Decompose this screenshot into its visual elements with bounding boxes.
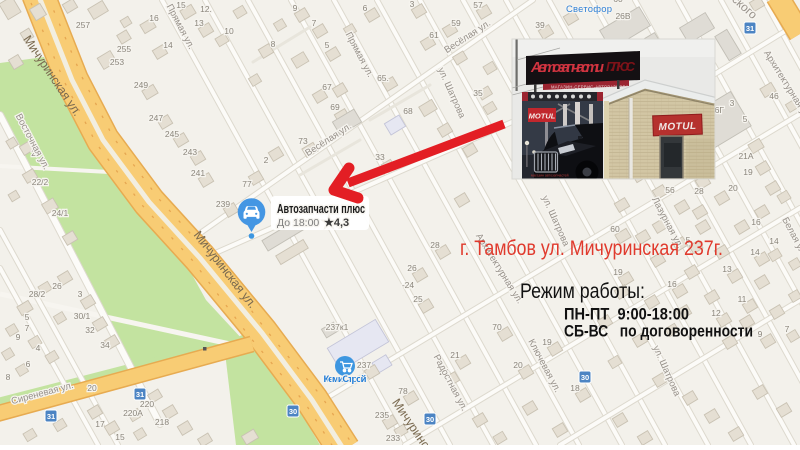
svg-text:26: 26	[407, 263, 417, 273]
svg-text:7: 7	[312, 18, 317, 28]
svg-text:14: 14	[163, 40, 173, 50]
svg-text:Режим работы:: Режим работы:	[520, 280, 645, 303]
svg-text:31: 31	[136, 390, 144, 399]
svg-text:7: 7	[25, 323, 30, 333]
svg-text:24/1: 24/1	[52, 208, 69, 218]
svg-text:235: 235	[375, 410, 389, 420]
svg-text:19: 19	[743, 167, 753, 177]
svg-text:247: 247	[149, 113, 163, 123]
svg-text:33: 33	[375, 152, 385, 162]
svg-text:ПЛЮС: ПЛЮС	[606, 59, 636, 74]
svg-text:31: 31	[746, 24, 754, 33]
svg-text:25: 25	[413, 294, 423, 304]
svg-text:34: 34	[100, 340, 110, 350]
svg-text:16: 16	[667, 279, 677, 289]
svg-text:MOTUL: MOTUL	[658, 121, 696, 133]
svg-text:13: 13	[194, 18, 204, 28]
svg-text:73: 73	[298, 136, 308, 146]
svg-text:Автозапчасти: Автозапчасти	[530, 60, 604, 76]
svg-text:★4,3: ★4,3	[324, 217, 349, 229]
svg-text:16: 16	[149, 13, 159, 23]
svg-text:60: 60	[610, 224, 620, 234]
svg-text:20: 20	[728, 183, 738, 193]
svg-text:8: 8	[6, 372, 11, 382]
svg-text:МАГАЗИН·СЕРВИС·АВТОРАЗБОРКА: МАГАЗИН·СЕРВИС·АВТОРАЗБОРКА	[551, 85, 632, 90]
svg-text:г. Тамбов ул. Мичуринская 237г: г. Тамбов ул. Мичуринская 237г.	[460, 237, 723, 260]
svg-text:59: 59	[451, 18, 461, 28]
svg-text:ПН-ПТ 9:00-18:00: ПН-ПТ 9:00-18:00	[564, 306, 689, 324]
svg-text:255: 255	[117, 44, 131, 54]
svg-text:243: 243	[183, 147, 197, 157]
svg-text:5: 5	[25, 312, 30, 322]
svg-text:14: 14	[750, 247, 760, 257]
svg-text:30/1: 30/1	[74, 311, 91, 321]
svg-text:28: 28	[694, 186, 704, 196]
svg-text:3: 3	[730, 98, 735, 108]
svg-text:12: 12	[711, 308, 721, 318]
svg-text:30: 30	[426, 415, 434, 424]
svg-text:15: 15	[115, 432, 125, 442]
svg-text:6: 6	[26, 359, 31, 369]
svg-text:магазин автозапчастей: магазин автозапчастей	[531, 174, 569, 178]
svg-text:253: 253	[110, 57, 124, 67]
svg-text:3: 3	[78, 289, 83, 299]
svg-text:Автозапчасти плюс: Автозапчасти плюс	[277, 201, 365, 216]
svg-text:68: 68	[403, 106, 413, 116]
svg-text:28: 28	[430, 240, 440, 250]
svg-text:61: 61	[429, 30, 439, 40]
svg-text:9: 9	[293, 3, 298, 13]
svg-text:30: 30	[289, 407, 297, 416]
svg-text:237к1: 237к1	[326, 322, 349, 332]
svg-text:31: 31	[47, 412, 55, 421]
svg-text:6: 6	[363, 3, 368, 13]
svg-text:До 18:00: До 18:00	[277, 217, 319, 229]
svg-text:46: 46	[769, 91, 779, 101]
svg-text:57: 57	[473, 0, 483, 10]
svg-text:10: 10	[224, 26, 234, 36]
svg-text:239: 239	[216, 199, 230, 209]
svg-text:3: 3	[410, 0, 415, 9]
svg-text:56: 56	[665, 185, 675, 195]
svg-text:19: 19	[542, 337, 552, 347]
svg-text:28/2: 28/2	[29, 289, 46, 299]
svg-text:218: 218	[155, 417, 169, 427]
svg-text:8: 8	[271, 39, 276, 49]
svg-text:241: 241	[191, 168, 205, 178]
svg-text:5: 5	[743, 114, 748, 124]
svg-text:78: 78	[398, 386, 408, 396]
svg-text:20: 20	[87, 383, 97, 393]
svg-text:17: 17	[95, 419, 105, 429]
svg-text:67: 67	[322, 82, 332, 92]
svg-text:20: 20	[513, 360, 523, 370]
svg-text:26В: 26В	[615, 11, 630, 21]
svg-text:9: 9	[16, 332, 21, 342]
svg-text:21: 21	[450, 350, 460, 360]
svg-text:14: 14	[769, 236, 779, 246]
svg-text:237: 237	[357, 360, 371, 370]
svg-text:22/2: 22/2	[32, 177, 49, 187]
svg-text:32: 32	[85, 325, 95, 335]
svg-text:60: 60	[613, 0, 623, 4]
svg-text:2: 2	[264, 155, 269, 165]
svg-text:КемиСтрой: КемиСтрой	[324, 374, 367, 385]
svg-text:11: 11	[738, 294, 747, 304]
svg-text:69: 69	[330, 102, 340, 112]
svg-text:26: 26	[52, 281, 62, 291]
svg-text:21А: 21А	[738, 151, 753, 161]
svg-text:16: 16	[751, 217, 761, 227]
svg-text:220А: 220А	[123, 408, 143, 418]
svg-text:4: 4	[36, 343, 41, 353]
svg-text:233: 233	[386, 433, 400, 443]
svg-text:65.: 65.	[377, 73, 389, 83]
svg-text:39: 39	[535, 20, 545, 30]
svg-text:MOTUL: MOTUL	[529, 112, 556, 121]
svg-text:13: 13	[722, 264, 732, 274]
svg-text:245: 245	[165, 129, 179, 139]
svg-text:18: 18	[570, 383, 580, 393]
svg-text:35: 35	[473, 88, 483, 98]
svg-text:249: 249	[134, 80, 148, 90]
svg-text:12.: 12.	[200, 4, 212, 14]
svg-text:5: 5	[325, 40, 330, 50]
svg-text:Светофор: Светофор	[566, 4, 612, 15]
svg-text:30: 30	[581, 373, 589, 382]
svg-text:-24: -24	[402, 280, 415, 290]
svg-text:СБ-ВС по договоренности: СБ-ВС по договоренности	[564, 323, 753, 341]
svg-text:19: 19	[613, 267, 623, 277]
svg-text:257: 257	[76, 20, 90, 30]
svg-text:70: 70	[492, 322, 502, 332]
svg-text:77: 77	[242, 179, 252, 189]
svg-text:9: 9	[758, 329, 763, 339]
svg-text:7: 7	[785, 324, 790, 334]
